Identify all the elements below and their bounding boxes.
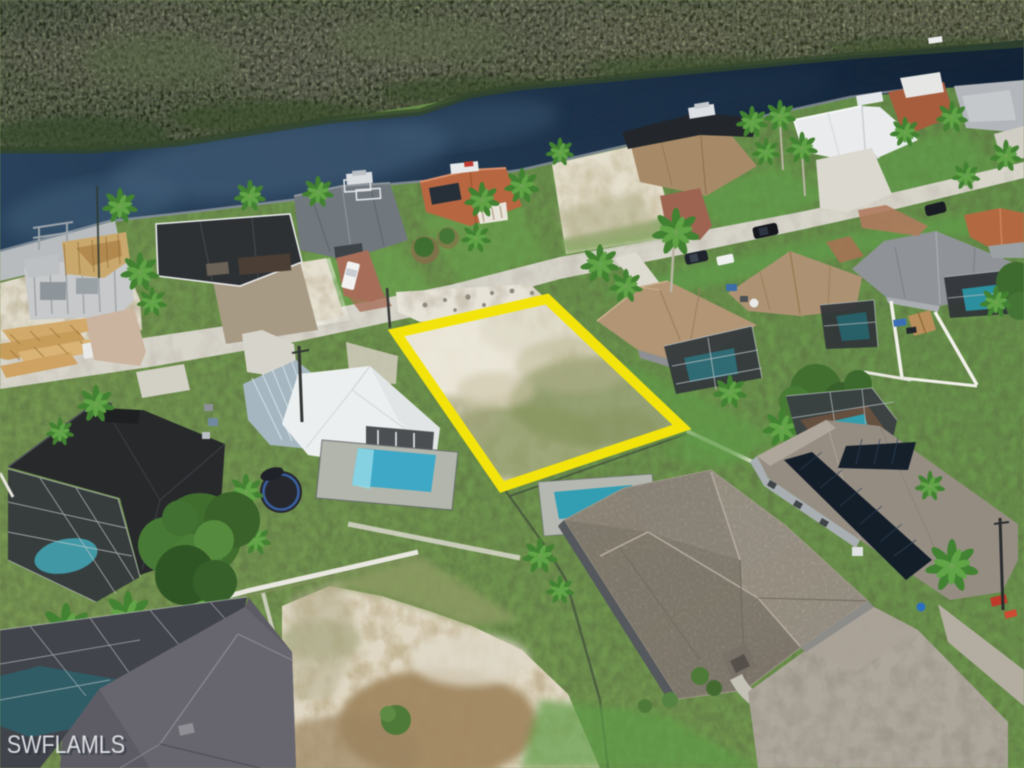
svg-text:SWFLAMLS: SWFLAMLS <box>7 730 125 758</box>
